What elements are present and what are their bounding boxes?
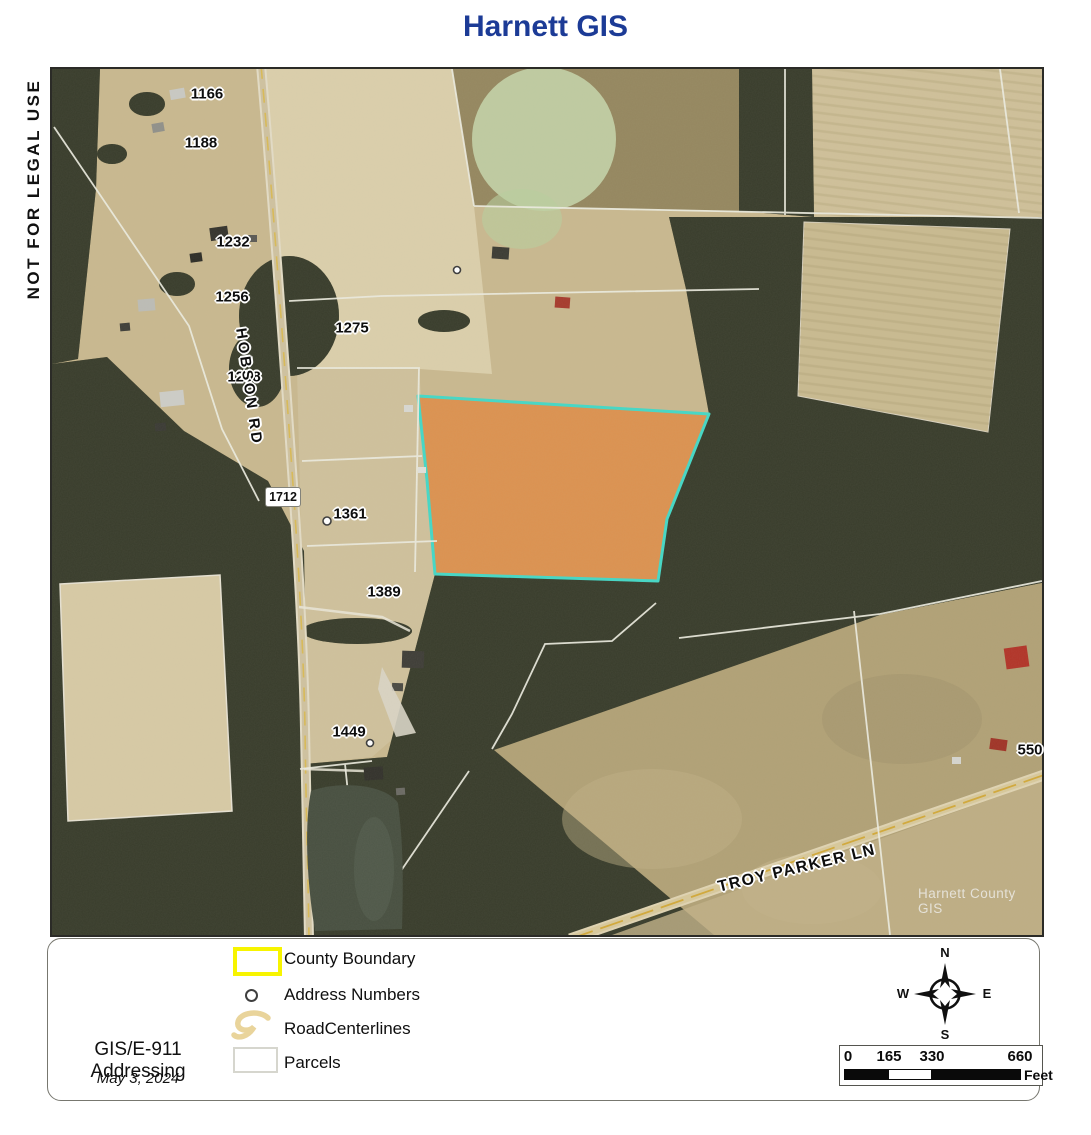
address-label: 1232 — [216, 234, 249, 251]
imagery-watermark: Harnett County GIS — [918, 886, 1042, 916]
address-label: 1275 — [335, 320, 368, 337]
legend-item-county-boundary: County Boundary — [284, 947, 415, 970]
route-shield-1712: 1712 — [265, 487, 301, 507]
scale-bar-track — [844, 1069, 1021, 1080]
compass-east-label: E — [983, 986, 992, 1001]
compass-west-label: W — [897, 986, 910, 1001]
map-export-page: Harnett GIS NOT FOR LEGAL USE — [0, 0, 1091, 1135]
legend-item-road-centerlines: RoadCenterlines — [284, 1017, 411, 1040]
address-label: 1188 — [185, 135, 218, 152]
scale-tick: 660 — [1007, 1048, 1032, 1065]
address-label: 1361 — [333, 506, 366, 523]
legend-item-parcels: Parcels — [284, 1051, 341, 1074]
map-canvas[interactable]: 1166 1188 1232 1256 1275 1288 1361 1389 … — [50, 67, 1044, 937]
scale-unit-label: Feet — [1024, 1067, 1053, 1083]
address-label: 1256 — [215, 289, 248, 306]
compass-north-label: N — [940, 946, 949, 960]
aerial-imagery — [52, 69, 1042, 935]
address-label: 1449 — [332, 724, 365, 741]
scale-bar: 0 165 330 660 Feet — [839, 1045, 1043, 1086]
map-date: May 3, 2024 — [48, 1070, 228, 1087]
compass-south-label: S — [941, 1027, 950, 1042]
address-number-dot-icon — [245, 989, 258, 1002]
address-label: 550 — [1017, 742, 1042, 759]
parcels-swatch-icon — [233, 1047, 278, 1073]
address-label: 1166 — [191, 86, 224, 103]
legend-item-address-numbers: Address Numbers — [284, 983, 420, 1006]
scale-tick: 165 — [876, 1048, 901, 1065]
not-for-legal-use-text: NOT FOR LEGAL USE — [24, 64, 50, 314]
address-label: 1389 — [367, 584, 400, 601]
road-centerline-squiggle-icon — [228, 1009, 276, 1045]
scale-tick: 0 — [844, 1048, 852, 1065]
scale-tick: 330 — [919, 1048, 944, 1065]
page-title: Harnett GIS — [0, 10, 1091, 44]
compass-rose-icon: N S W E — [895, 946, 995, 1042]
county-boundary-swatch-icon — [233, 947, 282, 976]
